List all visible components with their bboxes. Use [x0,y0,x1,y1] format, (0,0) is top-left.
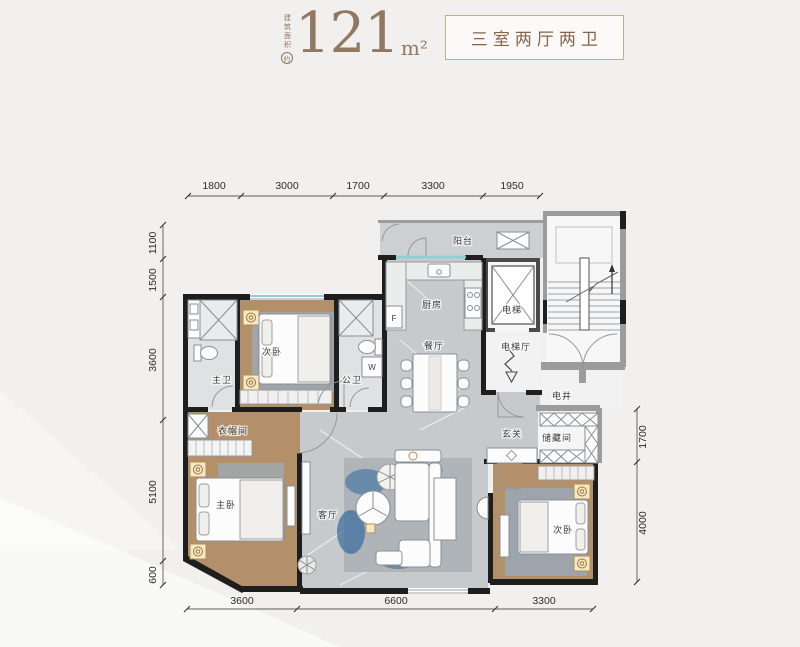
label-public-bath: 公卫 [342,375,362,385]
label-dining: 餐厅 [424,340,444,351]
label-elevator: 电梯 [502,304,522,315]
label-balcony: 阳台 [453,235,473,246]
label-master-bath: 主卫 [212,374,232,385]
dim-bottom-1: 6600 [384,595,408,607]
label-elevator-hall: 电梯厅 [501,341,531,352]
dim-right-0: 1700 [637,425,649,449]
dim-right-1: 4000 [637,511,649,535]
label-bedroom2: 次卧 [262,346,282,357]
dim-top-0: 1800 [202,180,226,192]
label-master-bedroom: 主卧 [216,499,236,510]
label-storage: 储藏间 [542,432,572,443]
label-kitchen: 厨房 [422,299,442,310]
dim-top-4: 1950 [500,180,524,192]
label-cloakroom: 衣帽间 [218,425,248,436]
dim-left-1: 1500 [147,268,159,292]
dim-bottom-0: 3600 [230,595,254,607]
dim-top-1: 3000 [275,180,299,192]
elevator [492,266,534,324]
dim-top-2: 1700 [346,180,370,192]
washer-label: W [368,363,376,372]
fridge-label: F [392,314,397,323]
dim-left-4: 600 [147,566,159,584]
dim-bottom-2: 3300 [532,595,556,607]
dim-left-2: 3600 [147,348,159,372]
dim-left-3: 5100 [147,480,159,504]
floor-plan: F [0,0,800,647]
label-bedroom3: 次卧 [553,524,573,535]
dim-top-3: 3300 [421,180,445,192]
dim-left-0: 1100 [147,232,159,255]
label-foyer: 玄关 [502,428,522,439]
dining-furniture [401,354,469,412]
label-shaft: 电井 [552,390,572,401]
label-living: 客厅 [318,509,338,520]
